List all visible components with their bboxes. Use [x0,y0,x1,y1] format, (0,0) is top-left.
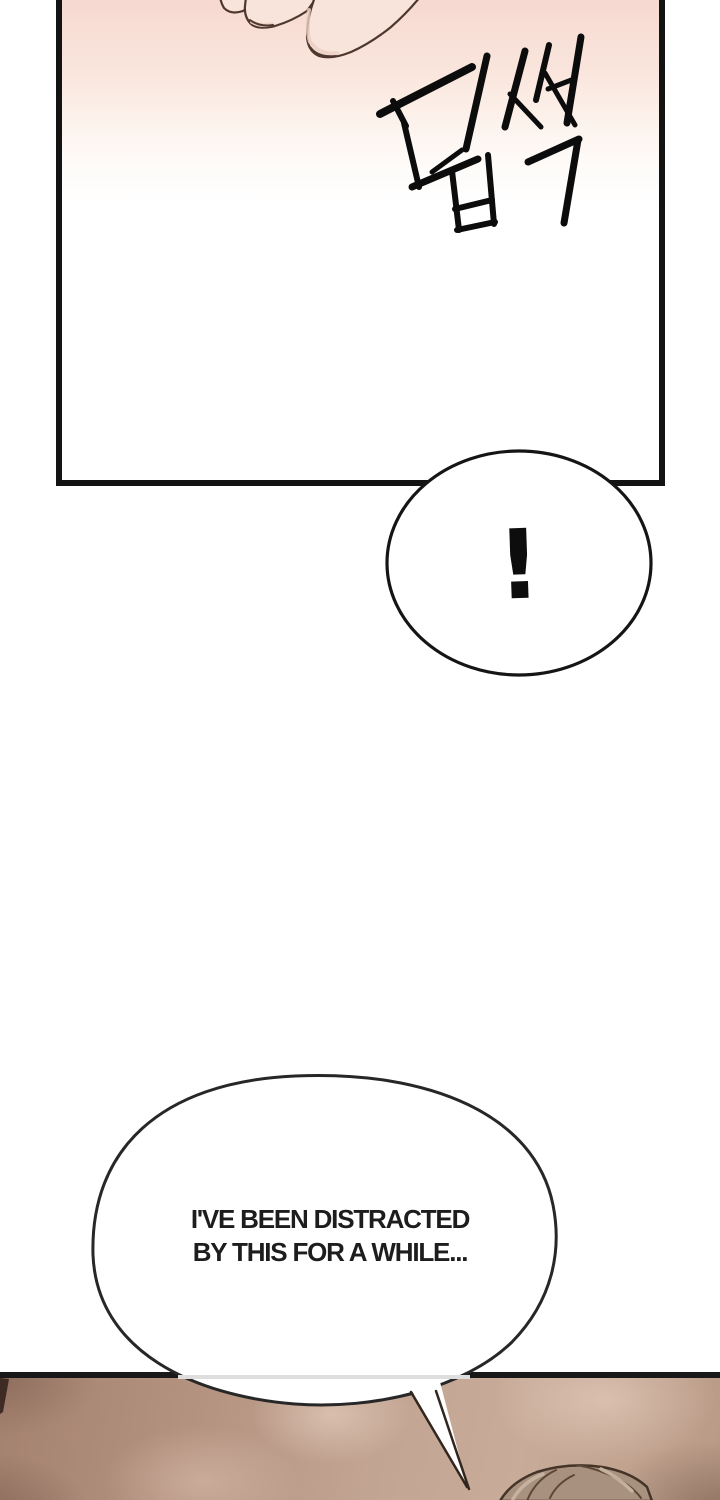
speech-line-2: BY THIS FOR A WHILE... [140,1236,520,1269]
speech-bubble-text: I'VE BEEN DISTRACTED BY THIS FOR A WHILE… [140,1203,520,1269]
top-panel [56,0,665,486]
webtoon-page: ! I'VE BEEN DISTRACTED BY THIS FOR [0,0,720,1500]
exclamation-mark: ! [495,508,543,621]
speech-line-1: I'VE BEEN DISTRACTED [140,1203,520,1236]
bottom-panel [0,1372,720,1500]
